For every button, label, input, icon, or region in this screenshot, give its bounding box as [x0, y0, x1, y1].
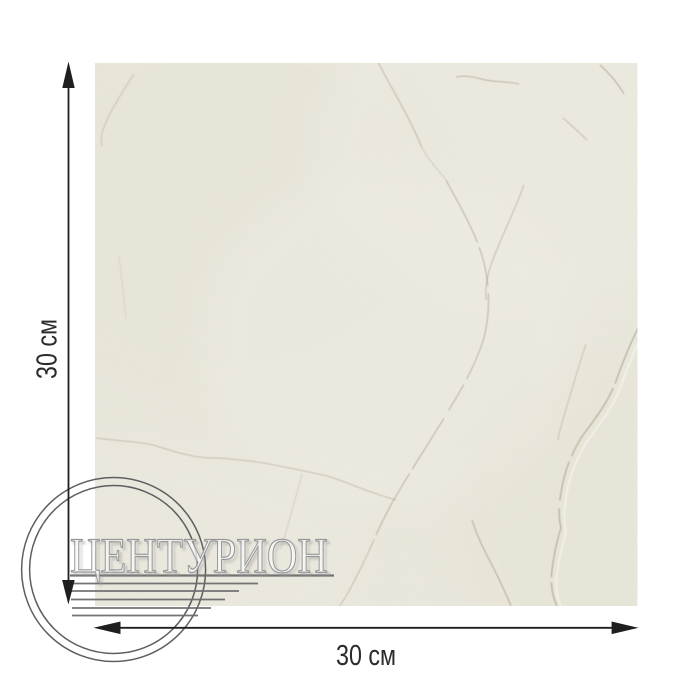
- svg-text:ЦЕНТУРИОН: ЦЕНТУРИОН: [70, 527, 328, 583]
- svg-text:30 см: 30 см: [336, 640, 396, 672]
- svg-text:30 см: 30 см: [32, 319, 64, 379]
